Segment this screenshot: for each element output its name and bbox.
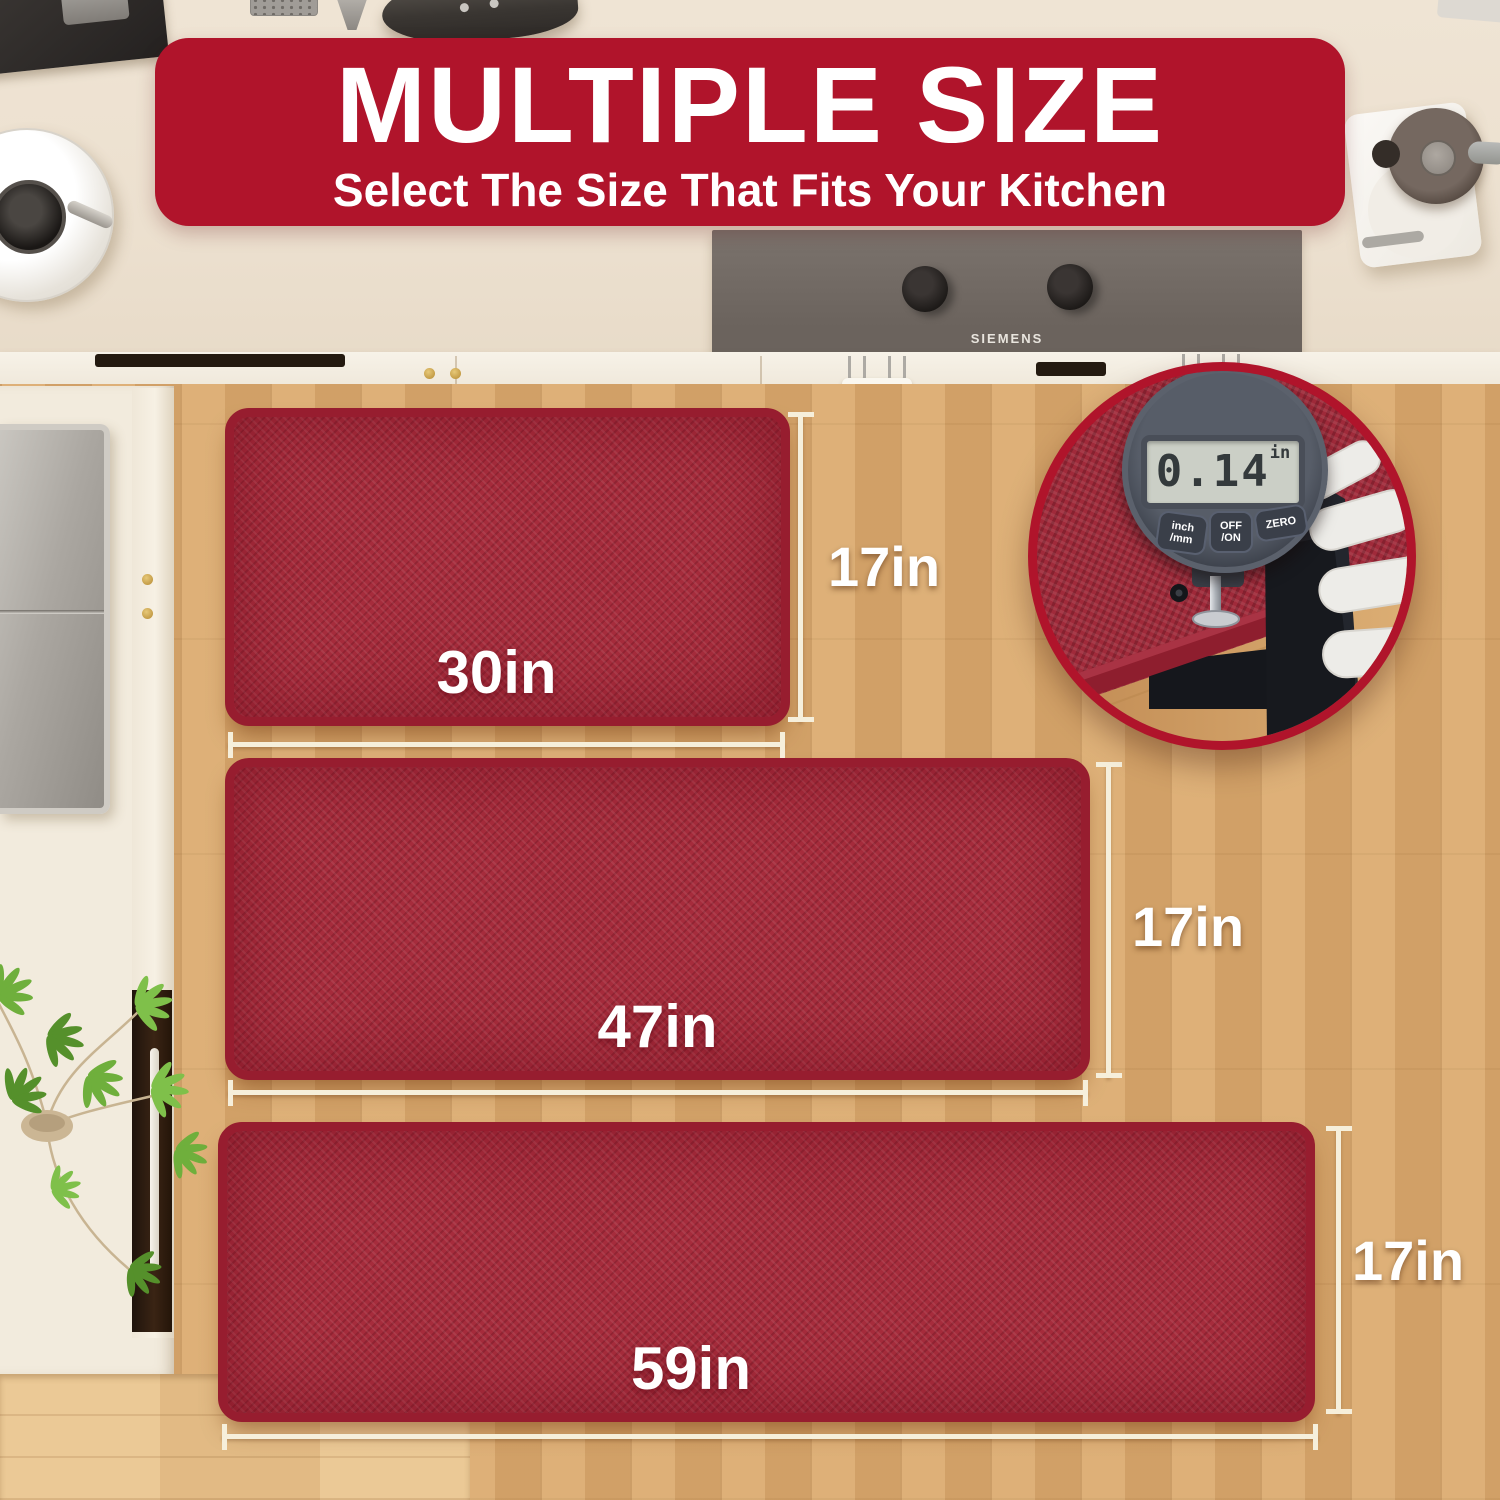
drawer-knob	[424, 368, 435, 379]
banner-subtitle: Select The Size That Fits Your Kitchen	[333, 167, 1167, 213]
banner-title: MULTIPLE SIZE	[336, 51, 1164, 159]
gauge-unit: in	[1270, 443, 1290, 463]
headline-banner: MULTIPLE SIZE Select The Size That Fits …	[155, 38, 1345, 226]
gauge-lcd-display: 0.14 in	[1141, 435, 1305, 509]
cabinet-knob	[142, 574, 153, 585]
electric-kettle-knob	[1420, 140, 1456, 176]
kitchen-mat-30in: 30in	[225, 408, 790, 726]
mat-width-label: 47in	[597, 992, 717, 1061]
iron-dot	[489, 0, 499, 8]
gauge-reading: 0.14	[1156, 450, 1270, 494]
stainless-appliance	[0, 424, 110, 814]
mat-width-label: 59in	[631, 1334, 751, 1403]
height-dimension-label: 17in	[1352, 1228, 1464, 1293]
electric-kettle-handle	[1467, 141, 1500, 165]
kitchen-mat-47in: 47in	[225, 758, 1090, 1080]
mat-width-label: 30in	[437, 638, 557, 707]
height-dimension-line-17in	[1106, 762, 1111, 1078]
gauge-spindle	[1210, 576, 1221, 616]
product-image: SIEMENS	[0, 0, 1500, 1500]
gauge-button-off-on: OFF /ON	[1209, 511, 1253, 553]
height-dimension-line-17in	[1336, 1126, 1341, 1414]
cabinet-knob	[142, 608, 153, 619]
appliance-door-seam	[0, 610, 104, 614]
electric-kettle-spout	[1372, 140, 1400, 168]
gauge-button-inch-mm: inch /mm	[1154, 510, 1209, 557]
kitchen-mat-59in: 59in	[218, 1122, 1315, 1422]
gauge-anvil	[1193, 611, 1239, 627]
siemens-cooktop: SIEMENS	[712, 230, 1302, 362]
thickness-measurement-inset: 0.14 in inch /mm OFF /ON ZERO	[1028, 362, 1416, 750]
cooktop-brand-label: SIEMENS	[712, 331, 1302, 346]
utensil-tray	[250, 0, 318, 16]
cooktop-knob	[1047, 264, 1093, 310]
width-dimension-line-47in	[228, 1090, 1088, 1095]
width-dimension-line-59in	[222, 1434, 1318, 1439]
iron-dot	[460, 3, 470, 13]
height-dimension-label: 17in	[828, 534, 940, 599]
cooktop-knob	[902, 266, 948, 312]
drawer-knob	[450, 368, 461, 379]
height-dimension-line-17in	[798, 412, 803, 722]
potted-plant	[0, 938, 250, 1358]
drawer-slot	[95, 354, 345, 367]
width-dimension-line-30in	[228, 742, 785, 747]
height-dimension-label: 17in	[1132, 894, 1244, 959]
